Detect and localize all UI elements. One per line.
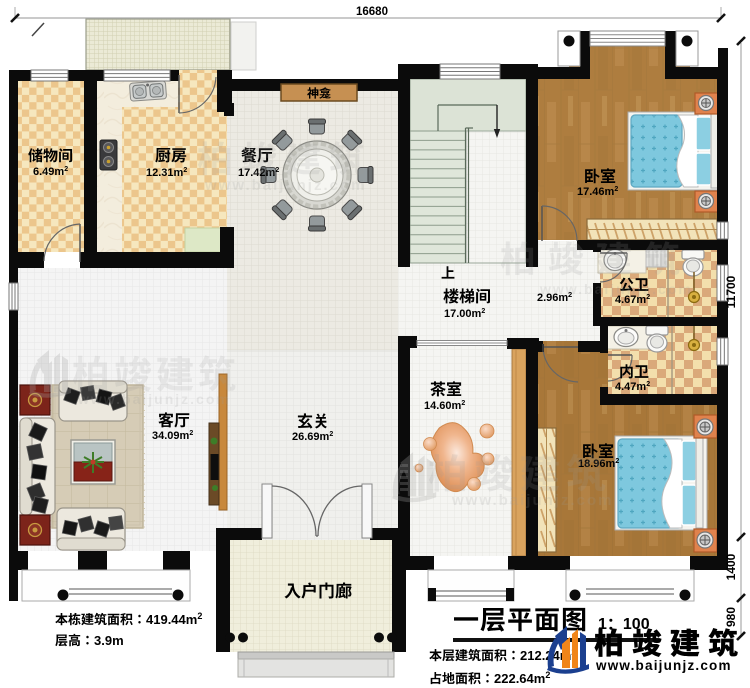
svg-text:www.baijunjz.com: www.baijunjz.com <box>595 658 732 673</box>
svg-text:419.44m2: 419.44m2 <box>146 611 202 627</box>
svg-text:12.31m2: 12.31m2 <box>146 167 187 179</box>
svg-text:3.9m: 3.9m <box>94 633 124 648</box>
svg-text:14.60m2: 14.60m2 <box>424 400 465 412</box>
svg-text:11700: 11700 <box>724 275 738 308</box>
svg-text:www.baijunjz.com: www.baijunjz.com <box>451 492 613 509</box>
svg-text:17.46m2: 17.46m2 <box>577 186 618 198</box>
svg-text:26.69m2: 26.69m2 <box>292 431 333 443</box>
svg-text:www.baijunjz.com: www.baijunjz.com <box>539 281 693 297</box>
svg-text:17.00m2: 17.00m2 <box>444 308 485 320</box>
svg-text:4.47m2: 4.47m2 <box>615 381 650 393</box>
svg-text:www.baijunjz.com: www.baijunjz.com <box>77 391 231 407</box>
svg-text:34.09m2: 34.09m2 <box>152 430 193 442</box>
svg-text:1400: 1400 <box>724 553 738 580</box>
svg-text:6.49m2: 6.49m2 <box>33 166 68 178</box>
svg-text:980: 980 <box>724 607 738 627</box>
svg-text:16680: 16680 <box>356 6 388 18</box>
svg-text:1：100: 1：100 <box>598 616 650 633</box>
svg-text:www.baijunjz.com: www.baijunjz.com <box>204 177 366 194</box>
svg-text:222.64m2: 222.64m2 <box>494 670 550 686</box>
